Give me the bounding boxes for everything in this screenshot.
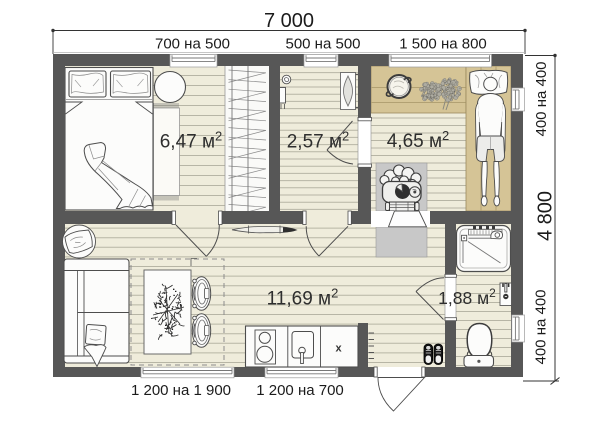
svg-text:4,65 м2: 4,65 м2 — [387, 128, 450, 152]
svg-text:1,88 м2: 1,88 м2 — [438, 286, 496, 308]
svg-text:4 800: 4 800 — [535, 191, 557, 241]
svg-text:6,47 м2: 6,47 м2 — [160, 129, 223, 153]
svg-text:1 200 на 1 900: 1 200 на 1 900 — [131, 382, 231, 399]
svg-text:7 000: 7 000 — [264, 10, 314, 32]
svg-text:500 на 500: 500 на 500 — [285, 36, 360, 53]
svg-text:400 на 400: 400 на 400 — [533, 289, 550, 364]
svg-text:1 500 на 800: 1 500 на 800 — [399, 36, 487, 53]
svg-text:11,69 м2: 11,69 м2 — [267, 286, 339, 310]
svg-text:1 200 на 700: 1 200 на 700 — [256, 382, 344, 399]
svg-text:700 на 500: 700 на 500 — [155, 36, 230, 53]
svg-text:400 на 400: 400 на 400 — [533, 61, 550, 136]
svg-text:x: x — [336, 343, 343, 355]
svg-text:2,57 м2: 2,57 м2 — [287, 129, 350, 153]
